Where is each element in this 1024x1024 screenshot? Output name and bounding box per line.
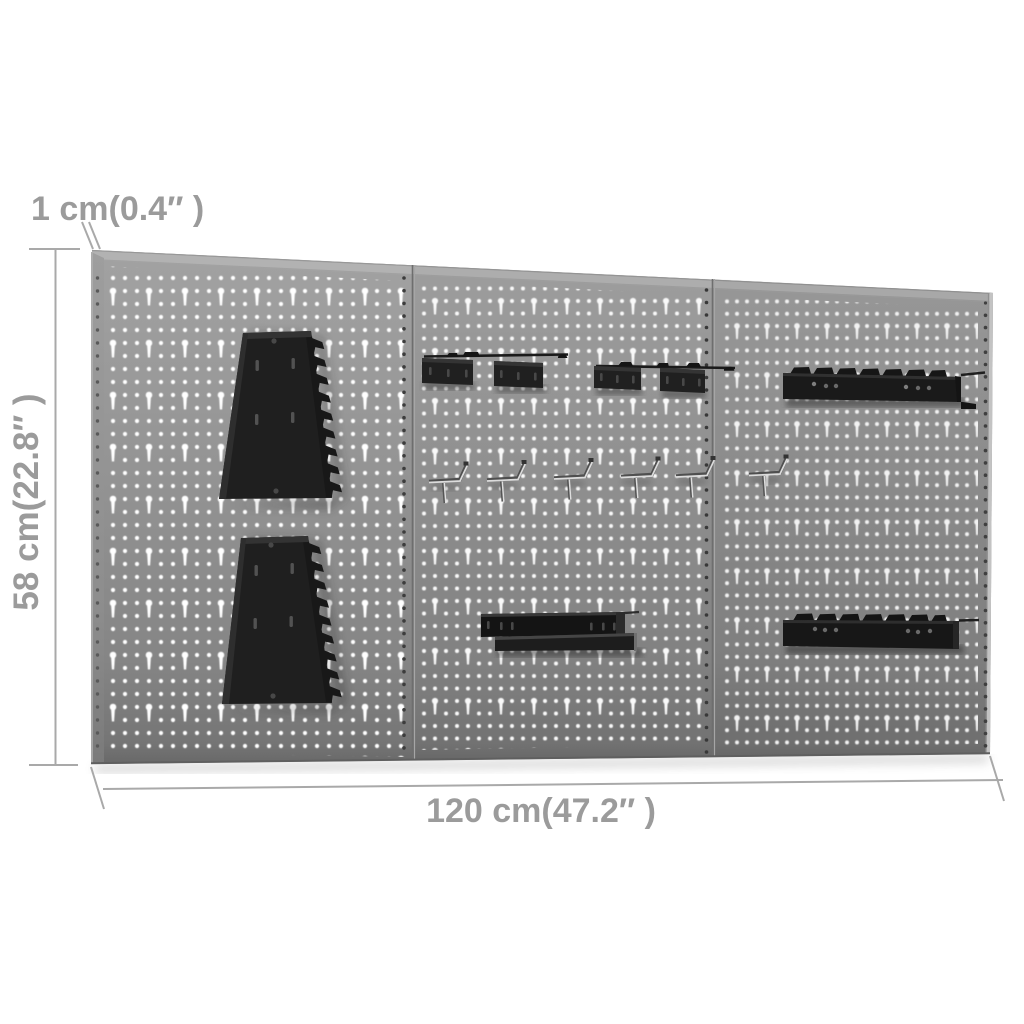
svg-text:120 cm(47.2″ ): 120 cm(47.2″ ) bbox=[426, 792, 656, 830]
svg-text:1 cm(0.4″ ): 1 cm(0.4″ ) bbox=[31, 190, 204, 228]
svg-text:58 cm(22.8″ ): 58 cm(22.8″ ) bbox=[7, 393, 46, 610]
